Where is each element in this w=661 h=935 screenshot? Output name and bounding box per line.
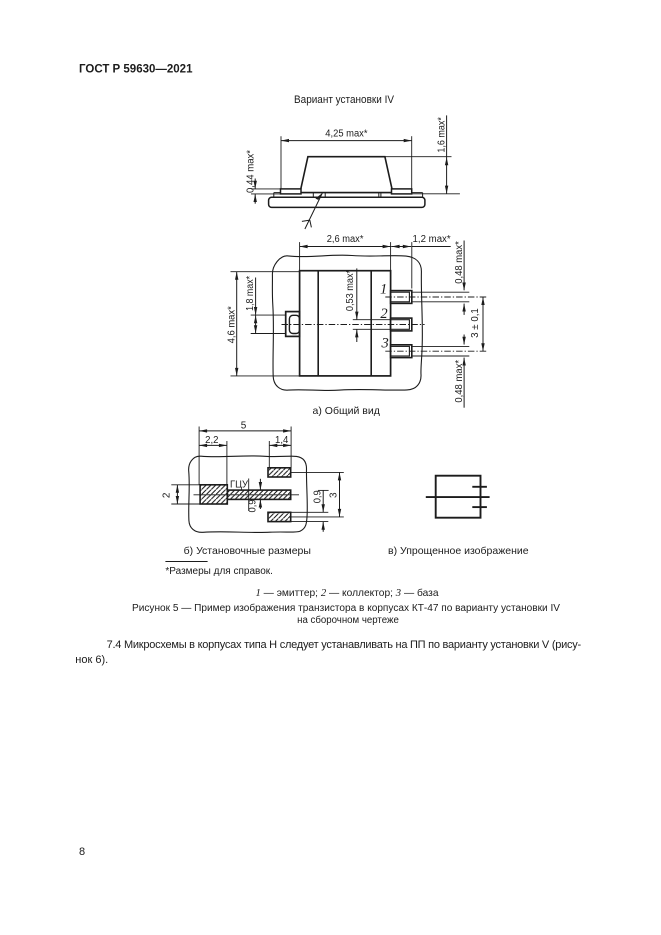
svg-text:0,48 max*: 0,48 max*: [454, 360, 465, 403]
svg-text:нок 6).: нок 6).: [75, 654, 108, 666]
svg-text:а) Общий вид: а) Общий вид: [313, 405, 380, 417]
svg-text:1,2 max*: 1,2 max*: [413, 234, 451, 245]
svg-text:на сборочном чертеже: на сборочном чертеже: [297, 614, 399, 626]
svg-text:0,53 max*: 0,53 max*: [345, 270, 356, 311]
svg-text:2: 2: [162, 492, 173, 498]
svg-text:в) Упрощенное изображение: в) Упрощенное изображение: [388, 545, 529, 557]
svg-text:0,9: 0,9: [313, 490, 324, 503]
svg-text:0,48 max*: 0,48 max*: [454, 241, 465, 284]
svg-text:ГОСТ Р 59630—2021: ГОСТ Р 59630—2021: [79, 64, 193, 76]
svg-text:3 ± 0,1: 3 ± 0,1: [470, 308, 481, 338]
svg-text:2,6 max*: 2,6 max*: [327, 234, 364, 245]
svg-text:7.4 Микросхемы в корпусах тип: 7.4 Микросхемы в корпусах типа Н следует…: [107, 639, 582, 651]
svg-text:2,2: 2,2: [205, 435, 219, 446]
svg-text:2: 2: [380, 306, 387, 322]
svg-text:Вариант установки IV: Вариант установки IV: [294, 94, 395, 106]
svg-text:1,8 max*: 1,8 max*: [245, 276, 256, 311]
svg-text:8: 8: [79, 846, 85, 858]
svg-text:*Размеры для справок.: *Размеры для справок.: [165, 566, 273, 577]
svg-text:1,4: 1,4: [275, 435, 289, 446]
svg-text:3: 3: [381, 336, 389, 352]
svg-text:5: 5: [241, 420, 247, 431]
svg-text:0,44 max*: 0,44 max*: [245, 150, 256, 193]
svg-text:1,6 max*: 1,6 max*: [437, 117, 448, 153]
svg-text:Рисунок 5 — Пример изображения: Рисунок 5 — Пример изображения транзисто…: [132, 602, 560, 614]
svg-text:0,9: 0,9: [247, 499, 258, 512]
svg-text:4,6 max*: 4,6 max*: [226, 306, 237, 343]
svg-text:1: 1: [380, 282, 387, 298]
svg-text:ГЦУ: ГЦУ: [230, 478, 248, 490]
svg-text:б) Установочные размеры: б) Установочные размеры: [184, 545, 311, 557]
svg-text:1 — эмиттер; 2 — коллектор; 3: 1 — эмиттер; 2 — коллектор; 3 — база: [256, 587, 439, 599]
svg-text:3: 3: [329, 492, 340, 498]
svg-text:4,25 max*: 4,25 max*: [325, 129, 367, 140]
